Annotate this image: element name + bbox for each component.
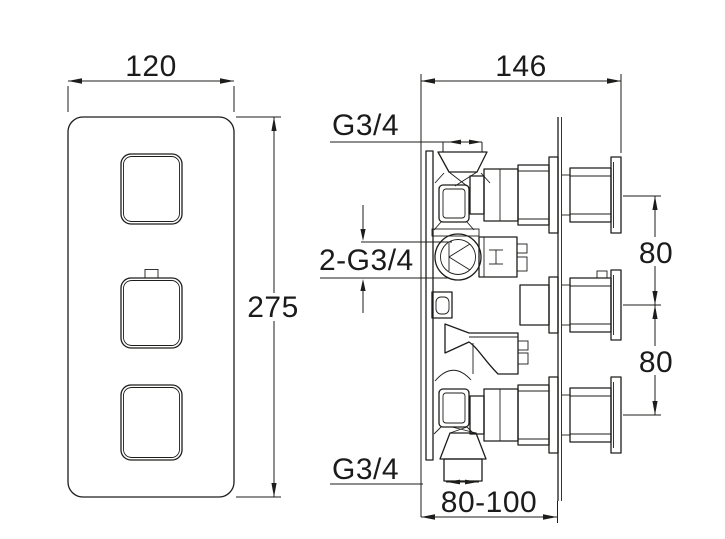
installation-depth-label: 80-100	[441, 486, 537, 519]
arrowhead	[652, 305, 657, 319]
arrowhead	[271, 117, 276, 131]
front-knob-top	[121, 154, 182, 224]
valve-handle-top	[470, 157, 621, 233]
side-outlet-port	[435, 234, 527, 280]
faceplate-outline	[68, 117, 234, 497]
arrowhead	[271, 483, 276, 497]
arrowhead	[448, 140, 461, 145]
arrowhead	[68, 78, 82, 83]
arrowhead	[652, 401, 657, 415]
arrowhead	[469, 140, 482, 145]
bottom-port-label: G3/4	[332, 453, 399, 486]
front-view: 120 275	[68, 50, 301, 497]
spacing-upper-label: 80	[639, 237, 673, 270]
arrowhead	[607, 78, 621, 83]
arrowhead	[652, 291, 657, 305]
dim-front-width: 120	[68, 50, 234, 112]
arrowhead	[421, 78, 435, 83]
technical-drawing-svg: 120 275 146	[0, 0, 725, 539]
arrowhead	[421, 514, 435, 519]
front-knob-middle	[121, 270, 182, 349]
side-port-label: 2-G3/4	[319, 244, 414, 277]
middle-outlet	[432, 292, 528, 381]
arrowhead	[220, 78, 234, 83]
spacing-lower-label: 80	[639, 346, 673, 379]
front-height-label: 275	[247, 291, 299, 324]
front-knob-bottom	[121, 385, 182, 460]
top-port-label: G3/4	[332, 109, 399, 142]
valve-handle-bottom	[470, 377, 621, 453]
handle-tab	[597, 271, 607, 278]
side-view: 146 G3/4	[319, 50, 673, 523]
side-depth-label: 146	[495, 50, 547, 83]
arrowhead	[360, 279, 365, 291]
technical-drawing-page: 120 275 146	[0, 0, 725, 539]
dim-installation-depth: 80-100	[421, 486, 558, 523]
arrowhead	[360, 229, 365, 241]
dim-front-height: 275	[236, 117, 301, 497]
top-port: G3/4	[330, 109, 490, 236]
front-width-label: 120	[125, 50, 177, 83]
dim-side-depth: 146	[421, 50, 621, 517]
valve-handle-middle	[520, 270, 621, 340]
arrowhead	[652, 196, 657, 210]
knob-tab	[145, 270, 158, 279]
arrowhead	[543, 514, 557, 519]
arrowhead	[465, 480, 478, 485]
arrowhead	[447, 480, 460, 485]
dim-port-spacing: 80 80	[623, 196, 673, 415]
bottom-port: G3/4	[330, 389, 486, 486]
